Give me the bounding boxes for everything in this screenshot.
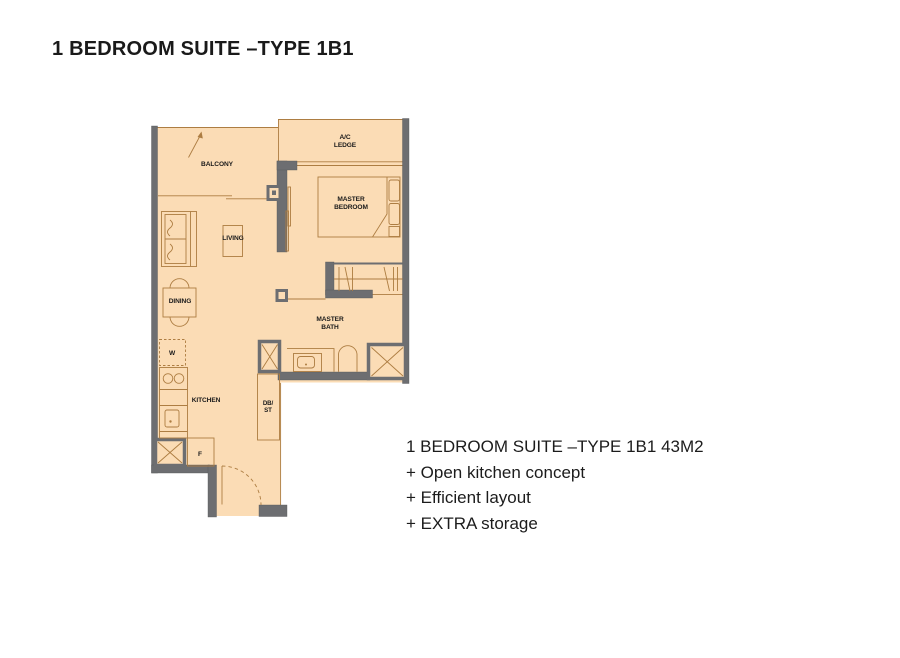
entry-right-stub-wall (259, 505, 287, 517)
label-living: LIVING (222, 235, 243, 242)
vanity-drain (305, 364, 307, 366)
label-ac-ledge-2: LEDGE (334, 142, 357, 149)
label-master-bath-2: BATH (321, 324, 339, 331)
label-master-bedroom-2: BEDROOM (334, 204, 368, 211)
label-ac-ledge-1: A/C (339, 134, 350, 141)
bath-bottom-wall (278, 372, 370, 380)
label-balcony: BALCONY (201, 161, 234, 168)
description-line-title: 1 BEDROOM SUITE –TYPE 1B1 43M2 (406, 434, 704, 460)
page: 1 BEDROOM SUITE –TYPE 1B1 (0, 0, 900, 658)
left-wall (152, 126, 158, 473)
label-db-st-1: DB/ (263, 400, 274, 407)
label-master-bedroom-1: MASTER (337, 196, 365, 203)
description-line-feature-3: + EXTRA storage (406, 511, 704, 537)
label-kitchen: KITCHEN (192, 397, 221, 404)
description-line-feature-1: + Open kitchen concept (406, 460, 704, 486)
label-washer: W (169, 350, 176, 357)
label-master-bath-1: MASTER (316, 316, 344, 323)
label-dining: DINING (169, 298, 191, 305)
label-fridge: F (198, 451, 202, 458)
bedroom-divider-wall (277, 161, 287, 252)
kitchen-sink-drain (169, 420, 171, 422)
description-line-feature-2: + Efficient layout (406, 485, 704, 511)
corridor-left-wall (208, 465, 217, 517)
bedroom-divider-arm (277, 161, 297, 170)
label-db-st-2: ST (264, 407, 272, 414)
floor-plan: BALCONY A/C LEDGE MASTER BEDROOM LIVING … (145, 110, 420, 520)
page-title: 1 BEDROOM SUITE –TYPE 1B1 (52, 38, 354, 61)
wardrobe-bottom-wall (326, 290, 373, 298)
bedroom-door-pivot-dot (272, 191, 276, 196)
unit-description: 1 BEDROOM SUITE –TYPE 1B1 43M2 + Open ki… (406, 434, 704, 536)
bath-door-pivot-inner (279, 292, 286, 299)
